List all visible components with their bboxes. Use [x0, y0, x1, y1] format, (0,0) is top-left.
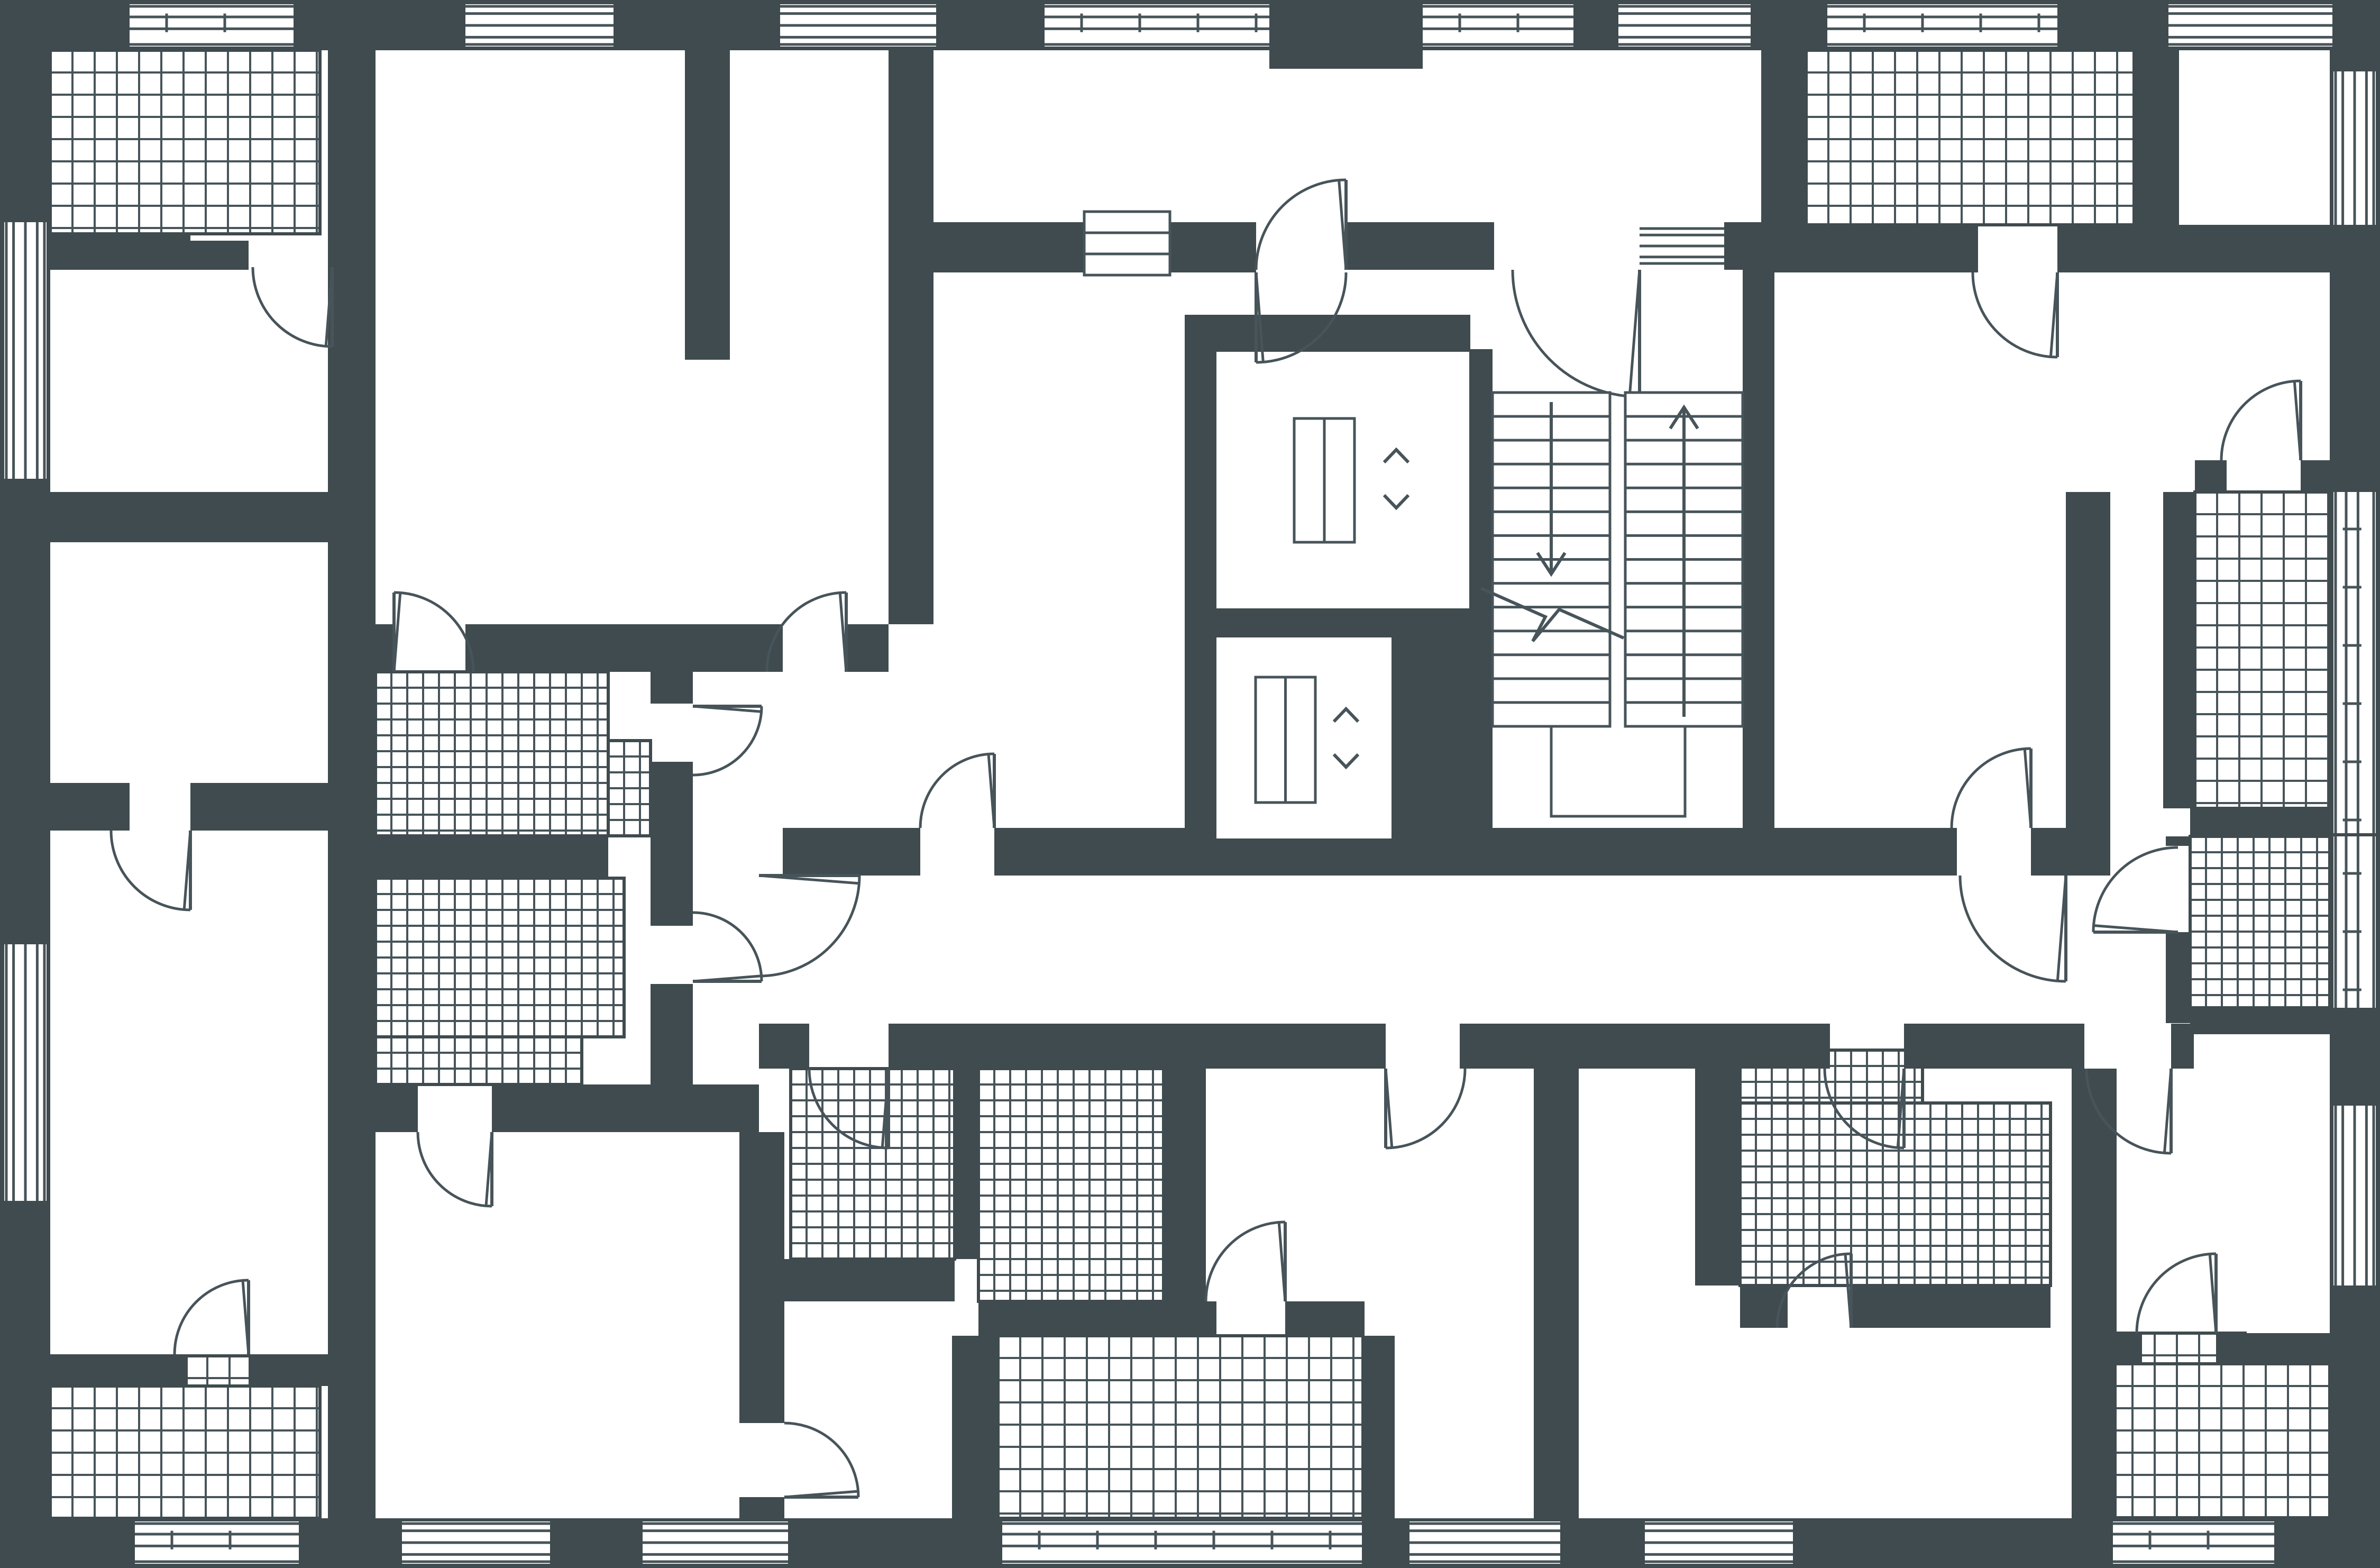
window: [4, 222, 47, 479]
interior-wall: [651, 762, 693, 926]
window: [4, 944, 47, 1201]
bathroom-west-upper: [376, 672, 651, 836]
interior-wall: [2190, 1008, 2330, 1034]
interior-wall: [1743, 222, 1774, 828]
railing: [2113, 1521, 2274, 1564]
window: [465, 4, 614, 47]
interior-wall: [1904, 1024, 2084, 1069]
interior-wall: [1774, 828, 1957, 876]
interior-wall: [50, 234, 190, 270]
railing: [2333, 836, 2376, 1008]
interior-wall: [50, 492, 328, 542]
interior-wall: [1185, 838, 1493, 876]
interior-wall: [846, 624, 889, 672]
interior-wall: [685, 50, 730, 360]
interior-wall: [492, 1084, 759, 1132]
railing-opening: [135, 1521, 299, 1564]
balcony-top-right: [1806, 50, 2134, 225]
interior-wall: [2163, 492, 2195, 808]
interior-wall: [1170, 222, 1256, 272]
interior-wall: [2066, 492, 2110, 876]
entry-steps: [1084, 212, 1170, 275]
interior-wall: [2301, 460, 2330, 492]
interior-wall: [1185, 315, 1470, 352]
railing: [1423, 4, 1573, 47]
floor-plan-canvas: [0, 0, 2380, 1568]
interior-wall: [1185, 315, 1216, 876]
railing-opening: [1423, 4, 1573, 47]
interior-wall: [783, 1259, 955, 1301]
interior-wall: [889, 1024, 1386, 1069]
interior-wall: [2072, 1069, 2117, 1518]
interior-wall: [328, 783, 376, 1518]
interior-wall: [952, 1336, 998, 1518]
interior-wall: [1460, 1024, 1830, 1069]
interior-wall: [328, 1084, 418, 1132]
railing-opening: [1045, 4, 1269, 47]
entry-step: [1084, 233, 1170, 254]
interior-wall: [759, 1024, 809, 1069]
railing-opening: [2333, 492, 2376, 833]
interior-wall: [2216, 1333, 2331, 1364]
entry-step: [1084, 212, 1170, 233]
interior-wall: [1724, 222, 1743, 270]
railing-opening: [1002, 1521, 1362, 1564]
interior-wall: [2134, 50, 2179, 272]
interior-wall: [2057, 225, 2330, 272]
window: [2333, 1106, 2376, 1286]
entry-step: [1084, 254, 1170, 275]
interior-wall: [1534, 1069, 1579, 1518]
interior-wall: [50, 783, 130, 831]
window: [1618, 4, 1751, 47]
interior-wall: [50, 1354, 188, 1386]
railing: [2333, 492, 2376, 833]
interior-wall: [1216, 608, 1469, 637]
interior-wall: [190, 783, 328, 831]
floor-plan: [0, 0, 2380, 1568]
interior-wall: [376, 624, 394, 672]
interior-wall: [955, 1069, 978, 1259]
window: [780, 4, 936, 47]
interior-wall: [328, 50, 376, 783]
interior-wall: [651, 984, 693, 1084]
railing-opening: [1827, 4, 2057, 47]
interior-wall: [739, 1497, 784, 1518]
interior-wall: [651, 672, 693, 704]
railing: [135, 1521, 299, 1564]
interior-wall: [978, 1301, 1216, 1336]
railing-opening: [130, 4, 294, 47]
railing-opening: [2113, 1521, 2274, 1564]
railing: [1002, 1521, 1362, 1564]
balcony-right-middle: [2195, 492, 2330, 808]
interior-wall: [1493, 828, 1774, 876]
interior-wall: [2031, 828, 2066, 876]
bathroom-west-upper-area: [376, 672, 608, 836]
interior-wall: [2195, 460, 2227, 492]
storage-east: [2190, 836, 2330, 1008]
interior-wall: [1469, 349, 1493, 876]
interior-wall: [889, 50, 933, 624]
window: [643, 1521, 788, 1564]
interior-wall: [1392, 637, 1469, 838]
railing: [1045, 4, 1269, 47]
balcony-top-right-area: [1806, 50, 2134, 225]
window: [1409, 1521, 1560, 1564]
interior-wall: [1851, 1286, 2051, 1328]
interior-wall: [376, 836, 608, 878]
interior-wall: [2166, 932, 2190, 1023]
window: [2168, 4, 2332, 47]
storage-east-area: [2190, 836, 2330, 1008]
interior-wall: [2110, 1333, 2142, 1364]
interior-wall: [2190, 808, 2330, 836]
railing: [1827, 4, 2057, 47]
balcony-bottom-center: [998, 1336, 1363, 1518]
interior-wall: [190, 241, 249, 270]
bathroom-center-right: [978, 1069, 1164, 1301]
interior-wall: [1363, 1336, 1395, 1518]
railing-opening: [2333, 836, 2376, 1008]
window: [1640, 226, 1724, 266]
interior-wall: [249, 1354, 328, 1386]
window: [1645, 1521, 1793, 1564]
interior-wall: [994, 828, 1185, 876]
interior-wall: [933, 222, 1084, 272]
interior-wall: [1164, 1069, 1206, 1336]
exterior-wall: [1269, 0, 1423, 69]
interior-wall: [1285, 1301, 1365, 1336]
interior-wall: [783, 828, 920, 876]
balcony-top-left: [50, 50, 320, 234]
window: [2333, 71, 2376, 225]
bathroom-center-right-area: [978, 1069, 1164, 1301]
interior-wall: [465, 624, 783, 672]
interior-wall: [1695, 1050, 1740, 1286]
interior-wall: [2166, 836, 2190, 846]
interior-wall: [1346, 222, 1494, 270]
railing: [130, 4, 294, 47]
window: [402, 1521, 550, 1564]
interior-wall: [1761, 50, 1806, 225]
interior-wall: [739, 1132, 784, 1423]
interior-wall: [1761, 225, 1978, 272]
